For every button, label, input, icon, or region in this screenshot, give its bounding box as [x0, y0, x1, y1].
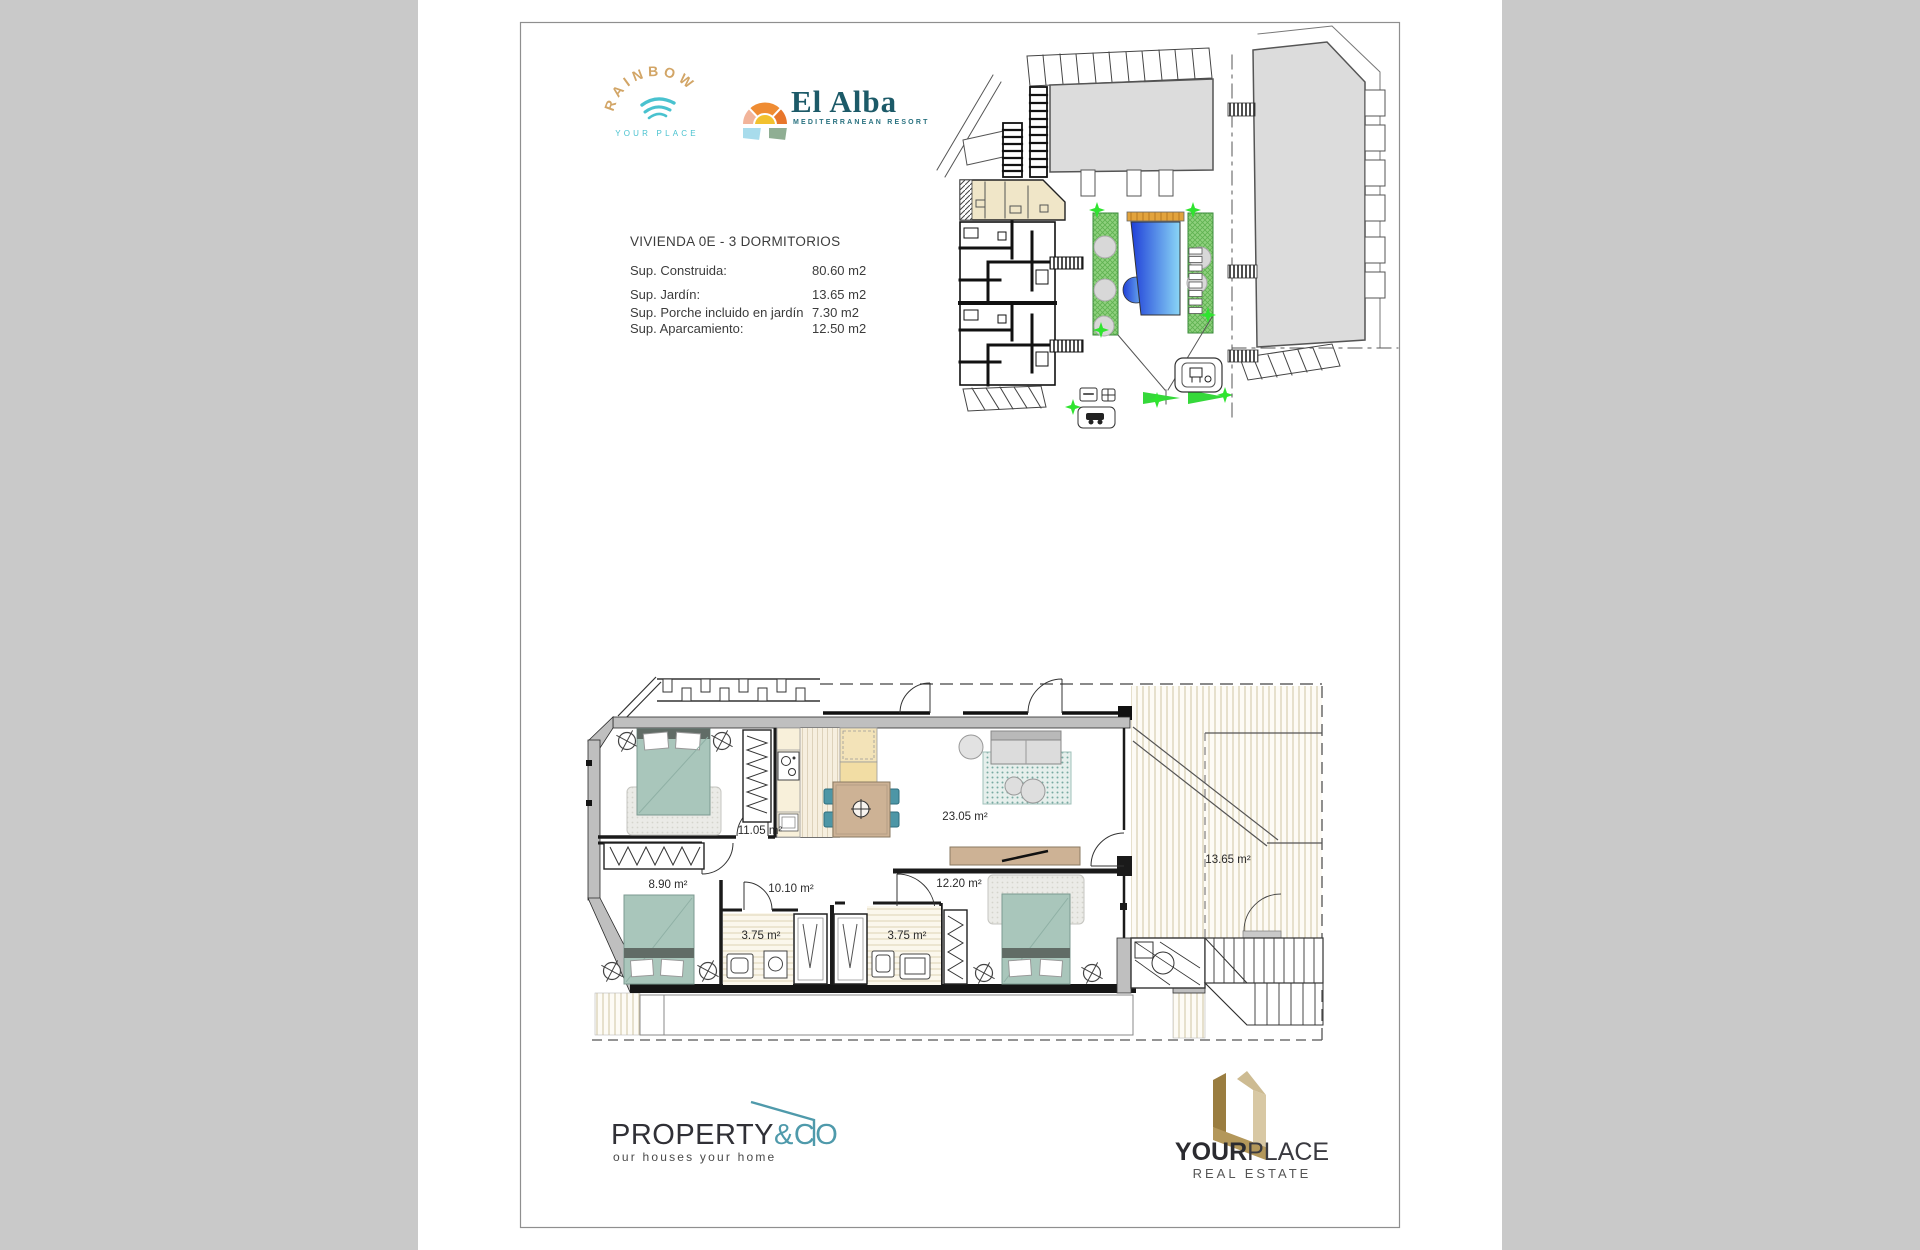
propertyco-name-teal: &CO [774, 1119, 838, 1151]
spec-value: 12.50 m2 [812, 321, 866, 336]
spec-value: 13.65 m2 [812, 287, 866, 302]
wardrobe-icon [944, 910, 967, 984]
yourplace-wordmark: YOURPLACE [1172, 1138, 1332, 1167]
porch-strip [592, 995, 1326, 1040]
spec-value: 80.60 m2 [812, 263, 866, 278]
room-area-label: 3.75 m² [742, 930, 781, 942]
spec-label: Sup. Porche incluido en jardín [630, 305, 812, 320]
bedroom3-furniture [944, 875, 1108, 989]
washbasin-icon [900, 954, 930, 979]
double-bed-icon [637, 729, 710, 815]
spec-row: Sup. Construida: 80.60 m2 [630, 263, 920, 278]
toilet-icon [727, 954, 753, 978]
el-alba-tagline: MEDITERRANEAN RESORT [793, 119, 930, 126]
tv-bench-icon [950, 847, 1080, 865]
room-area-label: 12.20 m² [936, 878, 982, 890]
washbasin-icon [764, 951, 787, 978]
pool [1123, 212, 1184, 315]
neighbour-walls [618, 677, 1132, 721]
sofa-icon [991, 731, 1061, 764]
site-boundary-lines [937, 75, 1012, 177]
propertyco-name-dark: PROPERTY [611, 1119, 774, 1151]
shower-icon [834, 914, 867, 984]
wardrobe-icon [604, 843, 704, 869]
unit-block-plans [960, 222, 1083, 385]
parking-row-bl [963, 386, 1046, 411]
garden-facade [1091, 728, 1132, 940]
bathroom2 [834, 906, 941, 985]
room-area-label: 3.75 m² [888, 930, 927, 942]
living-room [950, 731, 1080, 865]
site-plan [937, 26, 1398, 428]
building-main [1050, 79, 1213, 196]
shower-icon [794, 914, 827, 984]
dining-table-icon [824, 782, 899, 837]
spec-label: Sup. Aparcamiento: [630, 321, 812, 336]
double-bed-icon [1002, 894, 1070, 984]
spec-label: Sup. Construida: [630, 263, 812, 278]
yourplace-tagline: REAL ESTATE [1172, 1166, 1332, 1181]
garden-hatch [1131, 686, 1322, 938]
spec-row: Sup. Porche incluido en jardín 7.30 m2 [630, 305, 920, 320]
room-area-label: 10.10 m² [768, 883, 814, 895]
yourplace-name-light: PLACE [1247, 1138, 1329, 1166]
rainbow-logo: RAINBOW YOUR PLACE [597, 58, 717, 143]
stairs-icon [1003, 87, 1047, 177]
brochure-page: 11.05 m² 8.90 m² 10.10 m² 3.75 m² 3.75 m… [0, 0, 1920, 1250]
room-area-label: 8.90 m² [649, 879, 688, 891]
architectural-drawing: 11.05 m² 8.90 m² 10.10 m² 3.75 m² 3.75 m… [418, 0, 1502, 1250]
double-bed-icon [624, 895, 694, 984]
wave-icon [642, 99, 674, 118]
utility-stairs [1117, 938, 1323, 1025]
room-area-label: 23.05 m² [942, 811, 988, 823]
rainbow-tagline: YOUR PLACE [615, 129, 699, 138]
bedroom1-furniture [611, 725, 771, 835]
unit-specs: VIVIENDA 0E - 3 DORMITORIOS Sup. Constru… [630, 234, 920, 336]
el-alba-sunrise-icon [742, 102, 788, 141]
building-right [1253, 26, 1385, 347]
bedroom2-furniture [596, 843, 724, 987]
el-alba-wordmark: El Alba [791, 84, 897, 120]
room-area-label: 11.05 m² [738, 825, 783, 837]
wardrobe-icon [743, 730, 771, 822]
rainbow-arc-text: RAINBOW [601, 63, 700, 113]
highlighted-unit [960, 180, 1065, 220]
propertyco-wordmark: PROPERTY&CO [611, 1119, 838, 1152]
propertyco-tagline: our houses your home [613, 1150, 776, 1164]
spec-value: 7.30 m2 [812, 305, 859, 320]
cooktop-icon [778, 752, 799, 780]
floor-plan: 11.05 m² 8.90 m² 10.10 m² 3.75 m² 3.75 m… [586, 677, 1326, 1040]
spec-row: Sup. Aparcamiento: 12.50 m2 [630, 321, 920, 336]
toilet-icon [872, 951, 894, 977]
playground-icon [1175, 358, 1222, 392]
car-area-icons [1078, 388, 1115, 428]
yourplace-name-bold: YOUR [1175, 1138, 1247, 1166]
kitchen [777, 728, 899, 837]
unit-title: VIVIENDA 0E - 3 DORMITORIOS [630, 234, 920, 249]
spec-row: Sup. Jardín: 13.65 m2 [630, 287, 920, 302]
bathroom1 [723, 913, 827, 985]
spec-label: Sup. Jardín: [630, 287, 812, 302]
room-area-label: 13.65 m² [1205, 854, 1251, 866]
